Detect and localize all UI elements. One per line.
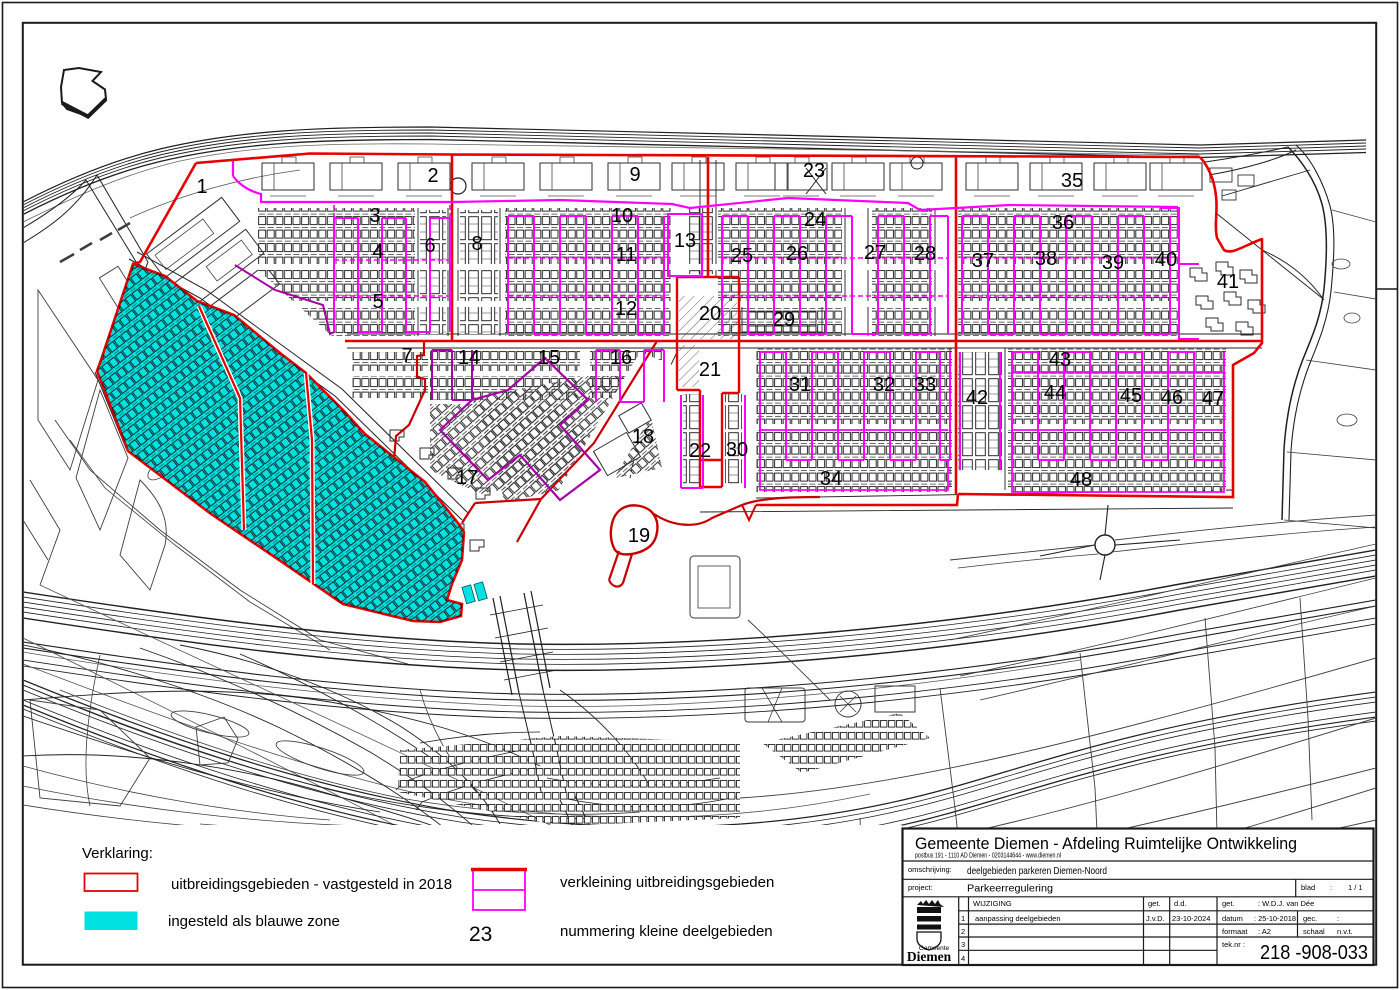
svg-text:45: 45 (1120, 385, 1142, 407)
svg-text:8: 8 (471, 233, 482, 255)
svg-text:3: 3 (961, 940, 965, 949)
svg-text:2: 2 (427, 165, 438, 187)
svg-text:37: 37 (972, 250, 994, 272)
svg-text:42: 42 (966, 387, 988, 409)
svg-text:23-10-2024: 23-10-2024 (1172, 914, 1210, 923)
svg-text:218 -908-033: 218 -908-033 (1260, 942, 1368, 964)
svg-text:44: 44 (1044, 382, 1066, 404)
svg-text:38: 38 (1035, 248, 1057, 270)
svg-text:uitbreidingsgebieden - vastges: uitbreidingsgebieden - vastgesteld in 20… (171, 876, 452, 893)
svg-text:34: 34 (820, 468, 842, 490)
svg-text:5: 5 (372, 291, 383, 313)
svg-text:23: 23 (803, 160, 825, 182)
svg-text:9: 9 (629, 164, 640, 186)
svg-text:blad: blad (1301, 883, 1315, 892)
svg-text:4: 4 (961, 954, 965, 963)
svg-text:10: 10 (611, 205, 633, 227)
svg-text:43: 43 (1049, 349, 1071, 371)
svg-text::: : (1337, 914, 1339, 923)
svg-text:31: 31 (789, 374, 811, 396)
svg-text:formaat: formaat (1222, 927, 1248, 936)
svg-text:12: 12 (615, 298, 637, 320)
svg-text:project:: project: (908, 883, 933, 892)
svg-text:get.: get. (1148, 899, 1161, 908)
svg-text:Parkeerregulering: Parkeerregulering (967, 883, 1053, 895)
svg-text:26: 26 (786, 243, 808, 265)
svg-text:11: 11 (616, 244, 637, 266)
svg-text:tek.nr :: tek.nr : (1222, 940, 1245, 949)
svg-text:: A2: : A2 (1258, 927, 1271, 936)
svg-text:27: 27 (864, 242, 886, 264)
svg-text:get.: get. (1222, 899, 1235, 908)
svg-text:17: 17 (456, 467, 478, 489)
svg-text:41: 41 (1217, 271, 1239, 293)
svg-text:47: 47 (1202, 388, 1224, 410)
svg-text:schaal: schaal (1303, 927, 1325, 936)
svg-text:28: 28 (914, 243, 936, 265)
svg-text:Verklaring:: Verklaring: (82, 845, 153, 862)
svg-text:aanpassing deelgebieden: aanpassing deelgebieden (975, 914, 1061, 923)
svg-text:29: 29 (773, 309, 795, 331)
svg-text:1: 1 (961, 914, 965, 923)
svg-text:7: 7 (401, 345, 412, 367)
svg-text:46: 46 (1161, 387, 1183, 409)
svg-text:36: 36 (1052, 212, 1074, 234)
svg-text:: 25-10-2018: : 25-10-2018 (1254, 914, 1296, 923)
svg-text:19: 19 (628, 525, 650, 547)
svg-text:Gemeente Diemen - Afdeling Rui: Gemeente Diemen - Afdeling Ruimtelijke O… (915, 834, 1297, 853)
svg-text:40: 40 (1155, 249, 1177, 271)
svg-text:22: 22 (689, 440, 711, 462)
svg-text:24: 24 (804, 209, 826, 231)
svg-text:Diemen: Diemen (907, 949, 952, 964)
svg-text:15: 15 (538, 347, 560, 369)
svg-text:14: 14 (458, 347, 480, 369)
svg-text:13: 13 (674, 230, 696, 252)
svg-text:datum: datum (1222, 914, 1243, 923)
svg-text:: W.D.J. van Dée: : W.D.J. van Dée (1258, 899, 1314, 908)
svg-text:2: 2 (961, 927, 965, 936)
svg-text:nummering kleine deelgebieden: nummering kleine deelgebieden (560, 923, 773, 940)
svg-text:6: 6 (424, 235, 435, 257)
svg-text:ingesteld als blauwe zone: ingesteld als blauwe zone (168, 913, 340, 930)
svg-text:omschrijving:: omschrijving: (908, 865, 952, 874)
svg-text:18: 18 (632, 426, 654, 448)
svg-text:20: 20 (699, 303, 721, 325)
svg-text:21: 21 (699, 359, 721, 381)
svg-text:33: 33 (914, 374, 936, 396)
svg-text:35: 35 (1061, 170, 1083, 192)
svg-text:d.d.: d.d. (1174, 899, 1187, 908)
svg-text:32: 32 (873, 374, 895, 396)
svg-text:3: 3 (369, 205, 380, 227)
svg-text:verkleining uitbreidingsgebied: verkleining uitbreidingsgebieden (560, 874, 774, 891)
svg-text:postbus 191 - 1110 AD Diemen -: postbus 191 - 1110 AD Diemen - 020314464… (915, 853, 1061, 860)
svg-text:39: 39 (1102, 252, 1124, 274)
svg-text:4: 4 (372, 241, 383, 263)
svg-text::: : (1330, 883, 1332, 892)
svg-text:1: 1 (196, 176, 207, 198)
svg-text:48: 48 (1070, 469, 1092, 491)
svg-text:16: 16 (610, 347, 632, 369)
svg-text:30: 30 (726, 439, 748, 461)
svg-text:J.v.D.: J.v.D. (1146, 914, 1165, 923)
svg-text:23: 23 (469, 923, 492, 946)
svg-text:gec.: gec. (1303, 914, 1317, 923)
svg-text:1 / 1: 1 / 1 (1348, 883, 1363, 892)
svg-text:WIJZIGING: WIJZIGING (973, 899, 1012, 908)
svg-text:deelgebieden parkeren Diemen-N: deelgebieden parkeren Diemen-Noord (967, 865, 1107, 877)
svg-text:25: 25 (731, 245, 753, 267)
svg-text:n.v.t.: n.v.t. (1337, 927, 1353, 936)
